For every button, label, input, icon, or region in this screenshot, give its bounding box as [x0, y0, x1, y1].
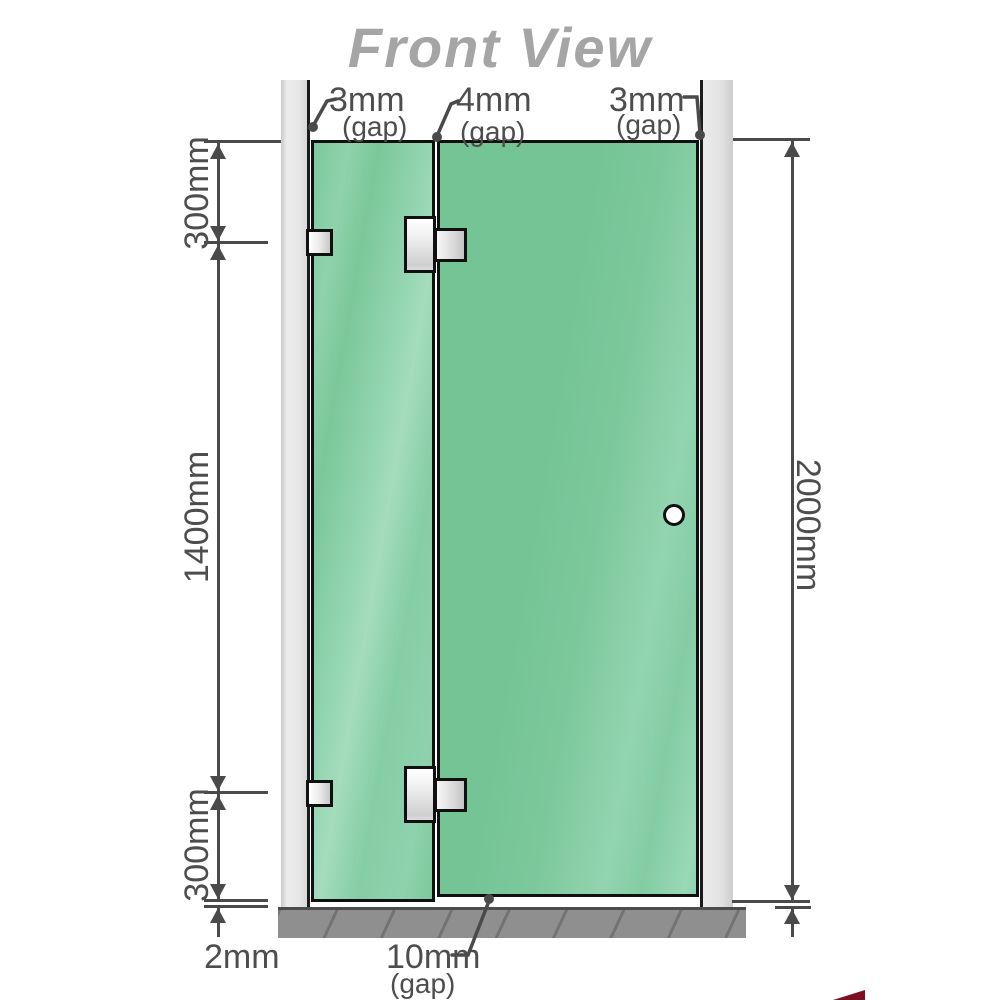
shower-screen-front-view-diagram: Front View 300mm 1400mm 300mm 2mm	[0, 0, 1000, 1000]
leader-lines	[0, 0, 1000, 1000]
